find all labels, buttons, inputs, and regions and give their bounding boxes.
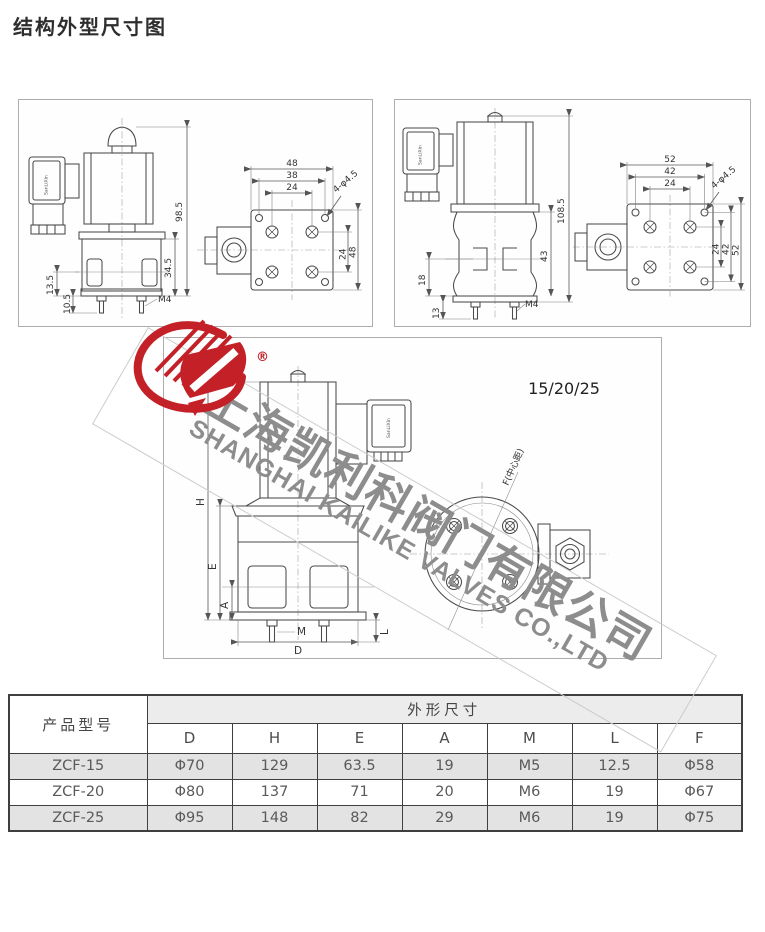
table-row: ZCF-20 Φ80 137 71 20 M6 19 Φ67 — [9, 779, 742, 805]
dim-total-height: 108.5 — [557, 198, 567, 224]
column-header-M: M — [487, 723, 572, 753]
page-title: 结构外型尺寸图 — [13, 11, 167, 40]
datasheet-page: { "page": { "title": "结构外型尺寸图" }, "water… — [0, 0, 765, 932]
dim-total-height: 98.5 — [175, 202, 185, 222]
small-valve-drawing: SanLiXin 98.5 34.5 13.5 10.5 M4 — [19, 100, 372, 326]
dimension-table: 产品型号 外形尺寸 D H E A M L F ZCF-15 Φ70 129 6… — [8, 694, 743, 832]
dim-port-span-v: 24 — [339, 248, 349, 260]
model-column-header: 产品型号 — [9, 695, 147, 753]
column-header-A: A — [402, 723, 487, 753]
column-header-L: L — [572, 723, 657, 753]
dim-port-span-v: 24 — [712, 243, 722, 255]
dimensions-group-header: 外形尺寸 — [147, 695, 742, 723]
dim-body-height: 43 — [540, 251, 550, 262]
dim-port-offset: 18 — [418, 274, 428, 286]
registered-trademark-icon: ® — [256, 350, 269, 365]
dim-E: E — [207, 563, 219, 570]
model-cell: ZCF-25 — [9, 805, 147, 831]
connector-brand-text: SanLiXin — [418, 145, 424, 165]
table-row: ZCF-25 Φ95 148 82 29 M6 19 Φ75 — [9, 805, 742, 831]
logo-swoosh — [138, 321, 247, 416]
drawing-box-small-valve: SanLiXin 98.5 34.5 13.5 10.5 M4 — [18, 99, 373, 327]
dim-mount-hole-span-v: 42 — [722, 244, 732, 255]
company-logo: ® — [128, 315, 276, 427]
dim-mount-hole-span: 42 — [664, 167, 675, 177]
column-header-D: D — [147, 723, 232, 753]
dim-flange-width: 48 — [286, 159, 298, 169]
large-valve-drawing: SanLiXin 108.5 43 18 13 M4 — [395, 100, 750, 326]
dim-flange-height: 48 — [349, 246, 359, 258]
dim-body-height: 34.5 — [164, 258, 174, 278]
dim-hole-note: 4-φ4.5 — [332, 169, 361, 195]
dim-port-span: 24 — [286, 183, 298, 193]
dim-stud-length: 10.5 — [63, 294, 73, 314]
column-header-E: E — [317, 723, 402, 753]
dim-hole-note: 4-φ4.5 — [710, 165, 739, 191]
dim-F-note: F(中心距) — [500, 447, 527, 488]
dim-stud-thread: M4 — [525, 300, 539, 310]
dim-L: L — [379, 629, 391, 635]
drawing-box-large-valve: SanLiXin 108.5 43 18 13 M4 — [394, 99, 751, 327]
dim-stud-thread: M4 — [158, 295, 172, 305]
model-cell: ZCF-20 — [9, 779, 147, 805]
dim-flange-width: 52 — [664, 155, 675, 165]
dim-port-span: 24 — [664, 179, 676, 189]
size-range-label: 15/20/25 — [528, 379, 600, 398]
column-header-F: F — [657, 723, 742, 753]
dim-mount-hole-span: 38 — [286, 171, 298, 181]
dim-A: A — [219, 601, 231, 609]
dim-stud-length: 13 — [432, 308, 442, 319]
connector-brand-text: SanLiXin — [386, 418, 392, 438]
dim-D: D — [294, 645, 302, 657]
dim-M: M — [297, 626, 306, 638]
connector-brand-text: SanLiXin — [44, 175, 50, 195]
model-cell: ZCF-15 — [9, 753, 147, 779]
dim-flange-height: 52 — [732, 245, 742, 256]
dim-H: H — [195, 498, 207, 506]
dim-port-offset: 13.5 — [46, 275, 56, 295]
column-header-H: H — [232, 723, 317, 753]
table-row: ZCF-15 Φ70 129 63.5 19 M5 12.5 Φ58 — [9, 753, 742, 779]
